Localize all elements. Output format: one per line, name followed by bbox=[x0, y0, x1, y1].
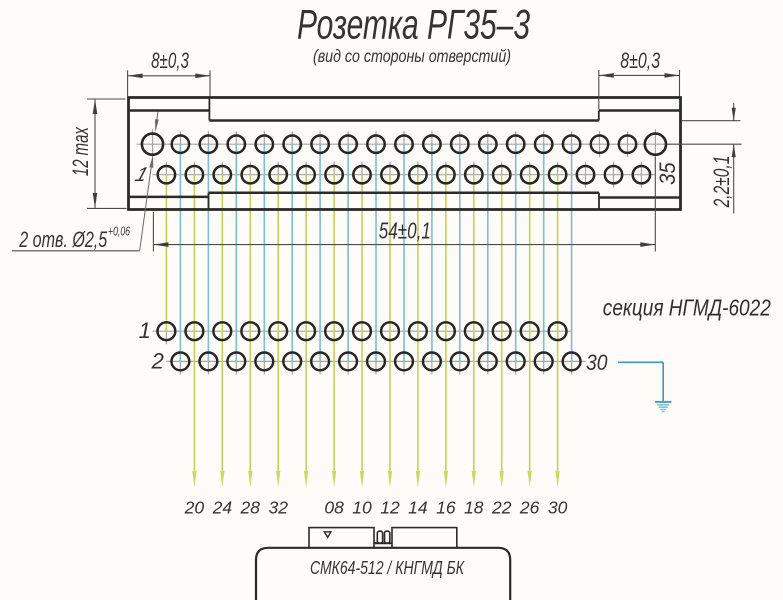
svg-text:12: 12 bbox=[380, 497, 400, 517]
svg-text:(вид со стороны отверстий): (вид со стороны отверстий) bbox=[313, 46, 511, 66]
svg-text:35: 35 bbox=[655, 162, 680, 185]
svg-text:26: 26 bbox=[519, 497, 540, 517]
svg-text:16: 16 bbox=[436, 497, 456, 517]
svg-text:54±0,1: 54±0,1 bbox=[379, 218, 431, 244]
svg-text:12 max: 12 max bbox=[68, 126, 93, 176]
svg-text:32: 32 bbox=[268, 497, 288, 517]
svg-text:секция НГМД-6022: секция НГМД-6022 bbox=[603, 295, 771, 321]
svg-text:22: 22 bbox=[491, 497, 512, 517]
svg-text:1: 1 bbox=[139, 318, 151, 343]
svg-text:2,2±0,1: 2,2±0,1 bbox=[709, 156, 734, 208]
svg-text:18: 18 bbox=[464, 497, 484, 517]
svg-text:2: 2 bbox=[151, 349, 164, 374]
svg-text:24: 24 bbox=[212, 497, 233, 517]
svg-text:30: 30 bbox=[586, 350, 608, 375]
svg-text:30: 30 bbox=[548, 497, 568, 517]
svg-text:+0,06: +0,06 bbox=[108, 224, 131, 239]
svg-text:14: 14 bbox=[408, 497, 428, 517]
svg-text:20: 20 bbox=[184, 497, 205, 517]
svg-text:08: 08 bbox=[324, 497, 344, 517]
svg-text:СМК64-512 / КНГМД БК: СМК64-512 / КНГМД БК bbox=[310, 557, 465, 578]
svg-text:1: 1 bbox=[132, 163, 150, 185]
svg-text:10: 10 bbox=[352, 497, 372, 517]
svg-text:8±0,3: 8±0,3 bbox=[620, 48, 660, 73]
svg-text:8±0,3: 8±0,3 bbox=[151, 48, 189, 73]
svg-text:28: 28 bbox=[240, 497, 261, 517]
svg-text:2 отв. Ø2,5: 2 отв. Ø2,5 bbox=[18, 227, 107, 252]
svg-text:Розетка РГ35–3: Розетка РГ35–3 bbox=[297, 1, 530, 48]
